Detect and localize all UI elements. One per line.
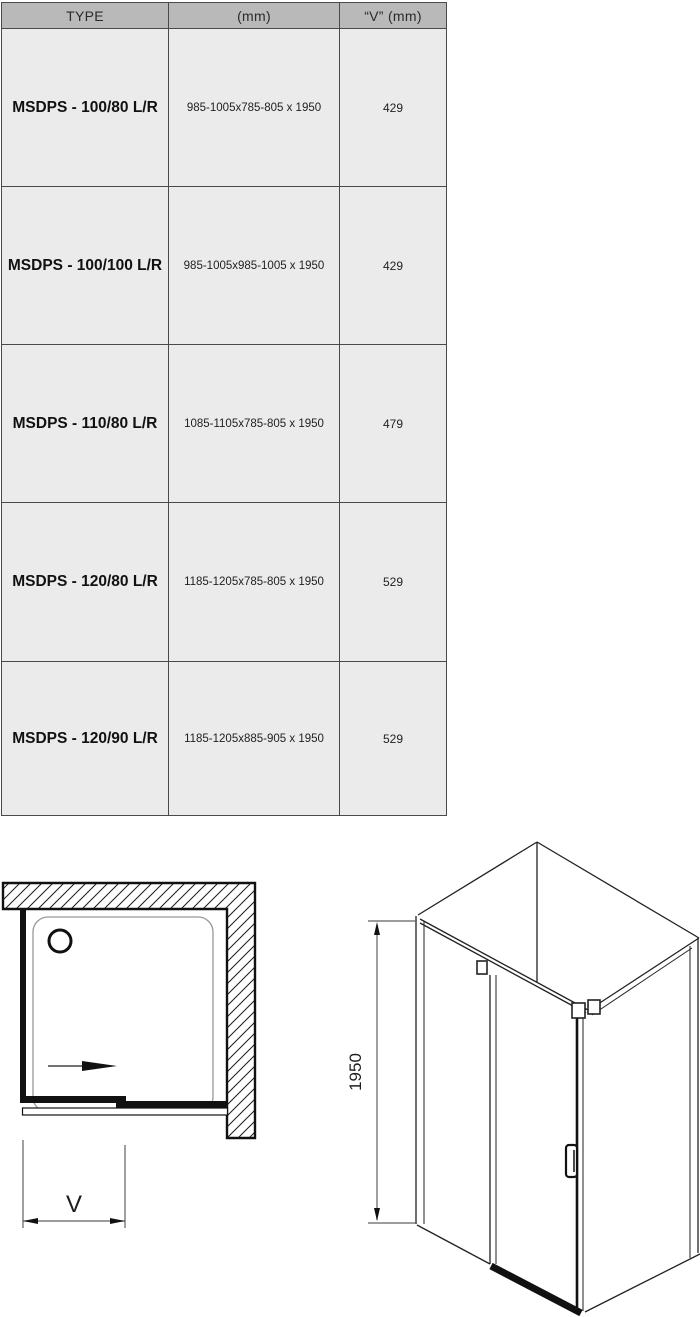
cell-dimensions: 1185-1205x785-805 x 1950 (169, 503, 339, 661)
drain-circle (49, 930, 71, 952)
header-cell-type: TYPE (2, 3, 168, 28)
cell-type: MSDPS - 120/80 L/R (2, 503, 168, 661)
cell-type: MSDPS - 100/80 L/R (2, 29, 168, 186)
cell-v-value: 529 (340, 503, 446, 661)
v-dimension-label: V (66, 1191, 82, 1218)
cell-type: MSDPS - 100/100 L/R (2, 187, 168, 344)
cell-dimensions: 985-1005x785-805 x 1950 (169, 29, 339, 186)
cell-type: MSDPS - 120/90 L/R (2, 662, 168, 815)
cell-v-value: 529 (340, 662, 446, 815)
cell-dimensions: 1185-1205x885-905 x 1950 (169, 662, 339, 815)
catalog-page: TYPE (mm) “V” (mm) MSDPS - 100/80 L/R 98… (0, 0, 700, 1317)
cell-v-value: 479 (340, 345, 446, 502)
cell-dimensions: 1085-1105x785-805 x 1950 (169, 345, 339, 502)
fixed-panel (20, 909, 26, 1103)
header-cell-v: “V” (mm) (340, 3, 446, 28)
door-handle (566, 1145, 577, 1177)
iso-view-diagram: 1950 (340, 830, 700, 1317)
height-dimension-label: 1950 (346, 1053, 365, 1091)
spec-table: TYPE (mm) “V” (mm) MSDPS - 100/80 L/R 98… (1, 2, 447, 816)
enclosure-frame (416, 842, 700, 1313)
top-view-diagram: V (0, 870, 280, 1317)
door-rail (420, 919, 600, 1018)
cell-type: MSDPS - 110/80 L/R (2, 345, 168, 502)
v-dimension: V (23, 1140, 125, 1228)
cell-v-value: 429 (340, 187, 446, 344)
height-dimension: 1950 (346, 921, 417, 1223)
cell-dimensions: 985-1005x985-1005 x 1950 (169, 187, 339, 344)
cell-v-value: 429 (340, 29, 446, 186)
header-cell-mm: (mm) (169, 3, 339, 28)
